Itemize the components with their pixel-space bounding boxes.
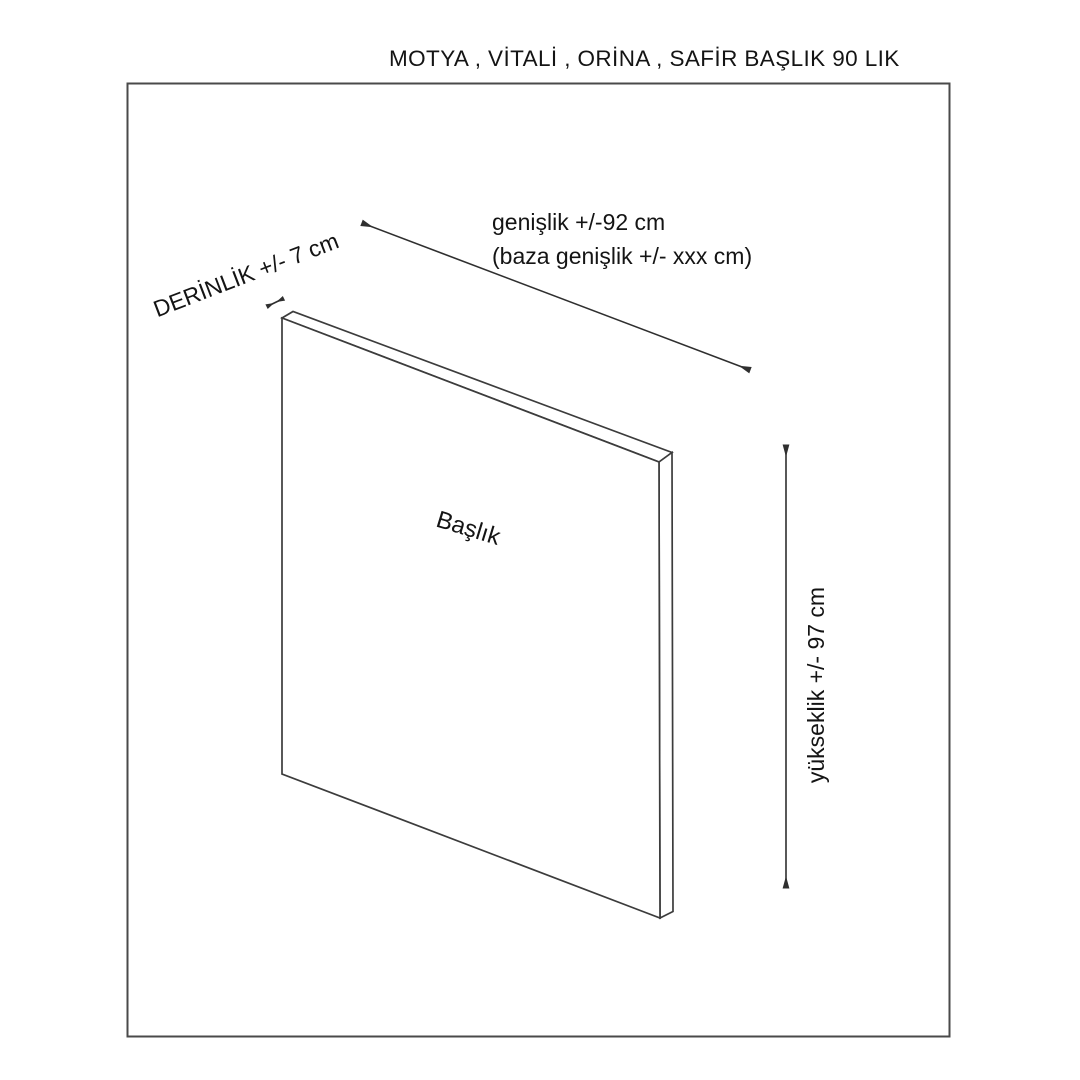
depth-dimension-arrow	[267, 299, 284, 307]
width-dimension-line2: (baza genişlik +/- xxx cm)	[492, 239, 752, 273]
panel-right-face	[659, 453, 673, 919]
width-dimension-label: genişlik +/-92 cm (baza genişlik +/- xxx…	[492, 205, 752, 273]
panel-front-face	[282, 318, 660, 918]
page-title: MOTYA , VİTALİ , ORİNA , SAFİR BAŞLIK 90…	[389, 46, 900, 72]
height-dimension-label: yükseklik +/- 97 cm	[802, 565, 830, 805]
drawing-canvas	[0, 0, 1080, 1080]
technical-drawing-page: MOTYA , VİTALİ , ORİNA , SAFİR BAŞLIK 90…	[0, 0, 1080, 1080]
width-dimension-line1: genişlik +/-92 cm	[492, 205, 752, 239]
